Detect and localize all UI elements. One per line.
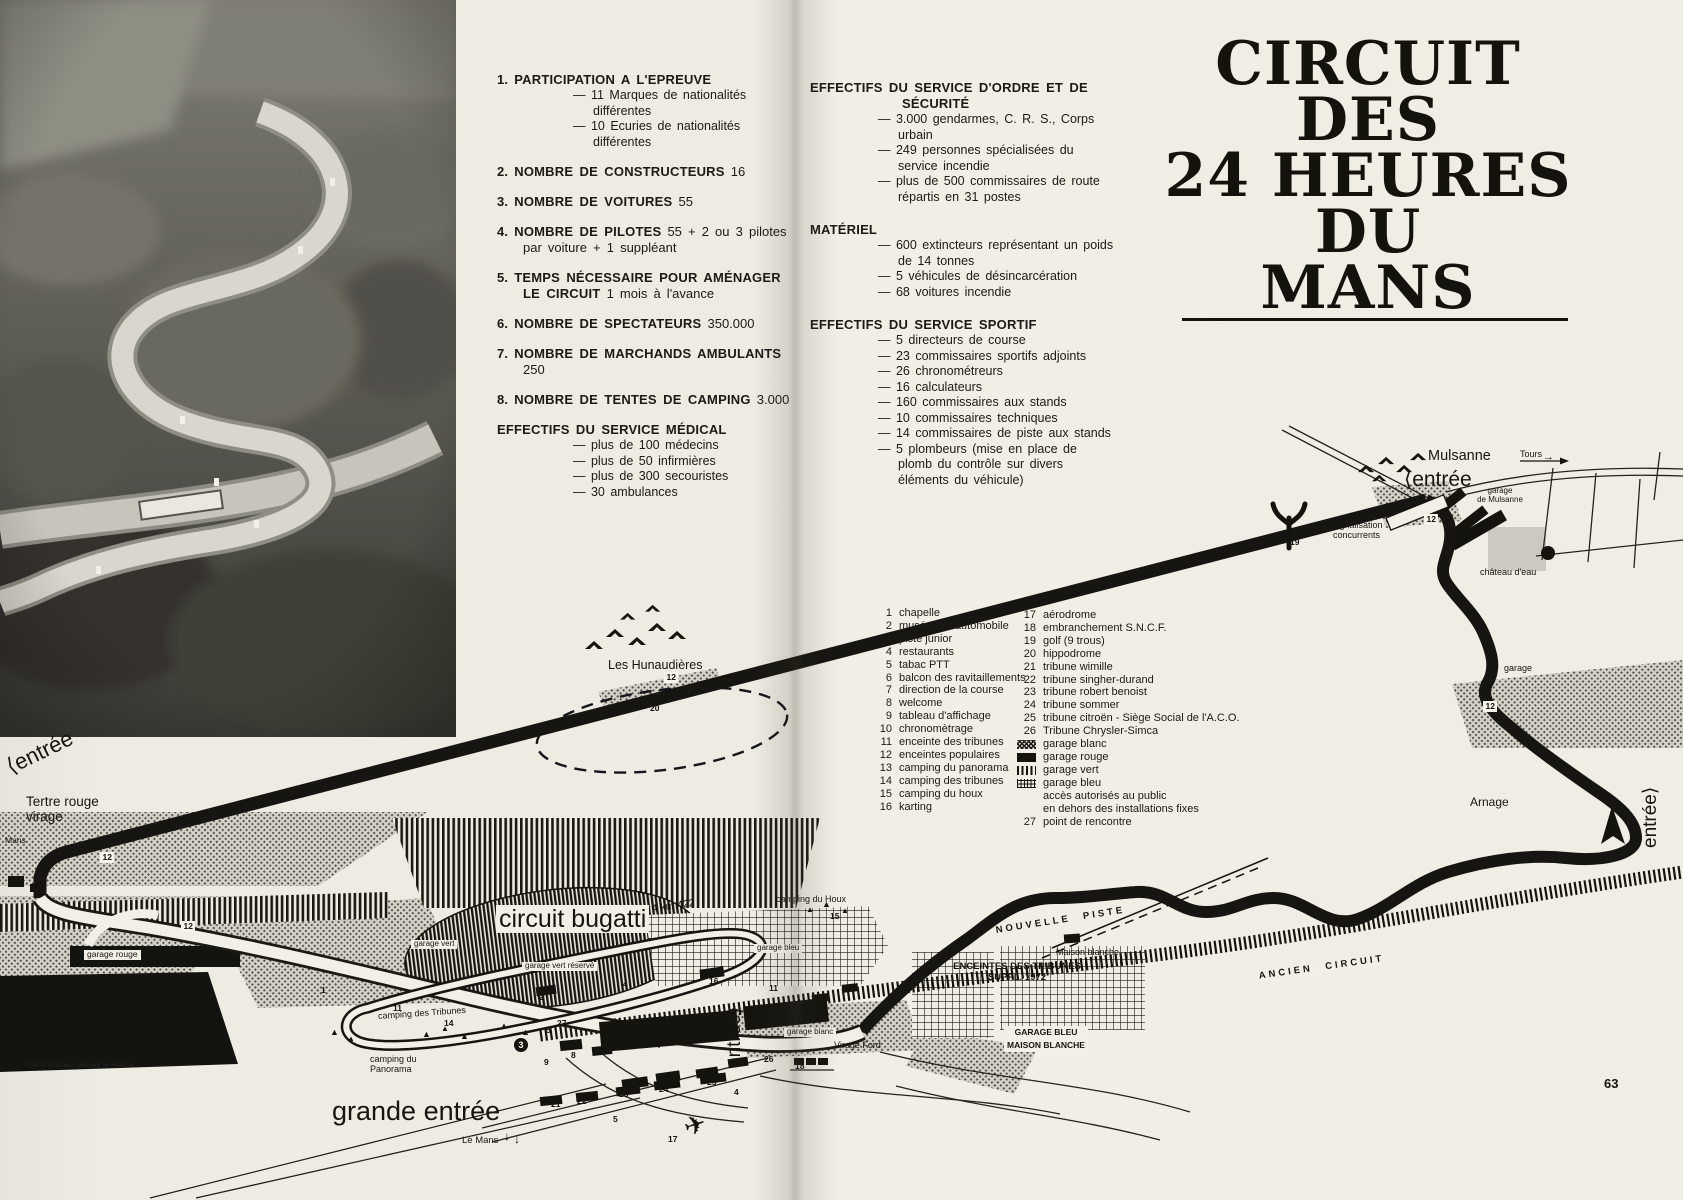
- tent-icon: ▲: [521, 1028, 530, 1037]
- tent-icon: ▲: [460, 1032, 469, 1041]
- legend-item: 14camping des tribunes: [872, 775, 1026, 788]
- legend-number: 8: [872, 697, 892, 710]
- stats-column-right: EFFECTIFS DU SERVICE D'ORDRE ET DE SÉCUR…: [810, 80, 1114, 505]
- label-garage-bleu-maison-blanche: GARAGE BLEU MAISON BLANCHE: [1004, 1026, 1088, 1052]
- stats-subline: — 5 plombeurs (mise en place de plomb du…: [810, 442, 1114, 489]
- stat-subline: — plus de 100 médecins: [497, 438, 797, 454]
- map-number: 4: [734, 1088, 739, 1097]
- label-mans: Mans: [5, 836, 26, 846]
- legend-swatch-grid: [1017, 779, 1036, 788]
- legend-item: garage vert: [1016, 764, 1240, 777]
- stat-title: NOMBRE DE TENTES DE CAMPING: [514, 392, 750, 407]
- map-number: 1: [321, 986, 326, 995]
- stat-title: NOMBRE DE CONSTRUCTEURS: [514, 164, 724, 179]
- title-line: DES: [1158, 92, 1578, 148]
- label-virage-ford: Virage Ford: [834, 1040, 881, 1050]
- map-number: 10: [791, 1017, 800, 1026]
- label-garage-rouge: garage rouge: [84, 950, 141, 960]
- stats-section-title: EFFECTIFS DU SERVICE D'ORDRE ET DE SÉCUR…: [810, 80, 1114, 112]
- stats-subline: — 16 calculateurs: [810, 380, 1114, 396]
- legend-item: 25tribune citroën - Siège Social de l'A.…: [1016, 712, 1240, 725]
- stat-item: 7.NOMBRE DE MARCHANDS AMBULANTS 250: [497, 346, 797, 378]
- map-number: 2: [539, 993, 544, 1002]
- label-camping-tribunes: camping des Tribunes: [378, 1005, 467, 1021]
- map-number: 12: [181, 921, 195, 932]
- map-number: 5: [546, 1026, 551, 1035]
- legend-item: 7direction de la course: [872, 684, 1026, 697]
- stat-item: 2.NOMBRE DE CONSTRUCTEURS 16: [497, 164, 797, 180]
- map-number: 12: [1424, 514, 1438, 525]
- stat-item: 6.NOMBRE DE SPECTATEURS 350.000: [497, 316, 797, 332]
- legend-label: Tribune Chrysler-Simca: [1043, 725, 1158, 738]
- arrow-down-icon: ↓: [504, 1130, 510, 1142]
- stat-subline: — plus de 50 infirmières: [497, 454, 797, 470]
- tent-icon: ▲: [441, 1025, 449, 1033]
- map-number: 22: [577, 1097, 586, 1106]
- legend-label: hippodrome: [1043, 648, 1101, 661]
- map-number: 12: [1483, 701, 1497, 712]
- label-entree-mulsanne: ⟨entrée: [1404, 468, 1472, 492]
- legend-label: camping des tribunes: [899, 775, 1004, 788]
- legend-number: 26: [1016, 725, 1036, 738]
- legend-label: chronomètrage: [899, 723, 973, 736]
- legend-number: 3: [872, 633, 892, 646]
- legend-label: balcon des ravitaillements: [899, 672, 1026, 685]
- legend-item: en dehors des installations fixes: [1016, 803, 1240, 816]
- stat-item: 3.NOMBRE DE VOITURES 55: [497, 194, 797, 210]
- stat-heading: 7.NOMBRE DE MARCHANDS AMBULANTS 250: [497, 346, 797, 378]
- tent-icon: ▲: [422, 1030, 431, 1039]
- legend-number: 12: [872, 749, 892, 762]
- stat-title: NOMBRE DE SPECTATEURS: [514, 316, 701, 331]
- legend-item: 24tribune sommer: [1016, 699, 1240, 712]
- stat-number: 6.: [497, 316, 508, 331]
- legend-item: 27point de rencontre: [1016, 816, 1240, 829]
- legend-item: garage rouge: [1016, 751, 1240, 764]
- map-number: 9: [544, 1058, 549, 1067]
- legend-item: 11enceinte des tribunes: [872, 736, 1026, 749]
- label-entree-centre: entrée⟩: [724, 1007, 745, 1068]
- legend-item: 17aérodrome: [1016, 609, 1240, 622]
- stat-number: 1.: [497, 72, 508, 87]
- title-line: DU: [1158, 204, 1578, 260]
- legend-number: 15: [872, 788, 892, 801]
- stat-heading: 4.NOMBRE DE PILOTES 55 + 2 ou 3 pilotes …: [497, 224, 797, 256]
- stats-subline: — 10 commissaires techniques: [810, 411, 1114, 427]
- legend-number: [1016, 803, 1036, 816]
- stats-subline: — 160 commissaires aux stands: [810, 395, 1114, 411]
- les-hunaudieres-roofs: [585, 605, 686, 649]
- legend-number: 13: [872, 762, 892, 775]
- legend-label: accès autorisés au public: [1043, 790, 1167, 803]
- stat-item: 4.NOMBRE DE PILOTES 55 + 2 ou 3 pilotes …: [497, 224, 797, 256]
- label-garage-blanc: garage blanc: [784, 1028, 836, 1037]
- legend-item: 15camping du houx: [872, 788, 1026, 801]
- legend-item: 19golf (9 trous): [1016, 635, 1240, 648]
- map-number: 7: [657, 1041, 662, 1050]
- stat-title: NOMBRE DE PILOTES: [514, 224, 661, 239]
- tent-icon: ▲: [822, 900, 831, 909]
- legend-label: garage bleu: [1043, 777, 1101, 790]
- legend-number: 5: [872, 659, 892, 672]
- stats-subline: — 68 voitures incendie: [810, 285, 1114, 301]
- legend-number: 10: [872, 723, 892, 736]
- stat-heading: 2.NOMBRE DE CONSTRUCTEURS 16: [497, 164, 797, 180]
- legend-number: 2: [872, 620, 892, 633]
- label-arnage: Arnage: [1470, 796, 1509, 809]
- stats-section-title: EFFECTIFS DU SERVICE SPORTIF: [810, 317, 1114, 333]
- legend-label: chapelle: [899, 607, 940, 620]
- tent-icon: ▲: [500, 1022, 508, 1030]
- map-number: 11: [393, 1004, 402, 1013]
- stat-heading: 8.NOMBRE DE TENTES DE CAMPING 3.000: [497, 392, 797, 408]
- stat-title: NOMBRE DE MARCHANDS AMBULANTS: [514, 346, 781, 361]
- legend-column-1: 1chapelle2musée de l'automobile3piste ju…: [872, 607, 1026, 814]
- label-garage-de-mulsanne: garage de Mulsanne: [1477, 487, 1523, 505]
- printer-credit: O P G conseil - printed in France: [26, 1062, 134, 1069]
- legend-number: 23: [1016, 686, 1036, 699]
- legend-label: musée de l'automobile: [899, 620, 1009, 633]
- legend-label: welcome: [899, 697, 942, 710]
- stats-subline: — 26 chronométreurs: [810, 364, 1114, 380]
- legend-label: karting: [899, 801, 932, 814]
- label-circuit-bugatti: circuit bugatti: [496, 905, 649, 933]
- tent-icon: ▲: [806, 906, 814, 914]
- label-signalisation: signalisation concurrents: [1333, 520, 1383, 540]
- legend-number: 7: [872, 684, 892, 697]
- stat-value: 3.000: [751, 392, 790, 407]
- label-camping-houx: camping du Houx: [776, 894, 846, 904]
- legend-swatch-dots: [1017, 740, 1036, 749]
- legend-label: camping du panorama: [899, 762, 1008, 775]
- legend-item: 23tribune robert benoist: [1016, 686, 1240, 699]
- legend-label: enceinte des tribunes: [899, 736, 1004, 749]
- stats-section: EFFECTIFS DU SERVICE SPORTIF— 5 directeu…: [810, 317, 1114, 488]
- signalisation-building: [1386, 495, 1448, 530]
- map-number: 6: [630, 1024, 635, 1033]
- label-ancien-circuit: ANCIEN CIRCUIT: [1255, 954, 1388, 983]
- label-tours: Tours: [1520, 449, 1542, 459]
- garage-bleu-zones: [645, 906, 1145, 1038]
- stat-value: 250: [523, 362, 545, 377]
- label-camping-panorama: camping du Panorama: [370, 1054, 417, 1074]
- label-tertre-rouge: Tertre rouge virage: [26, 794, 99, 824]
- stats-subline: — 5 véhicules de désincarcération: [810, 269, 1114, 285]
- label-nouvelle-piste: NOUVELLE PISTE: [995, 906, 1126, 937]
- page-title: CIRCUITDES24 HEURESDUMANS: [1158, 36, 1578, 316]
- stat-heading: EFFECTIFS DU SERVICE MÉDICAL: [497, 422, 797, 438]
- stat-heading: 5.TEMPS NÉCESSAIRE POUR AMÉNAGER LE CIRC…: [497, 270, 797, 302]
- legend-swatch-solid: [1017, 753, 1036, 762]
- legend-label: tribune wimille: [1043, 661, 1113, 674]
- stat-value: 16: [725, 164, 746, 179]
- label-entree-arnage: entrée⟩: [1640, 787, 1661, 848]
- label-enceintes-suppl: ENCEINTES DES TRIBUNES SUPPL. 1972: [953, 962, 1081, 983]
- label-garage-arnage: garage: [1504, 663, 1532, 673]
- stat-title: EFFECTIFS DU SERVICE MÉDICAL: [497, 422, 727, 437]
- legend-item: garage bleu: [1016, 777, 1240, 790]
- stat-number: 4.: [497, 224, 508, 239]
- legend-item: 5tabac PTT: [872, 659, 1026, 672]
- arrow-right-icon: →: [1543, 452, 1554, 463]
- legend-item: 4restaurants: [872, 646, 1026, 659]
- legend-label: direction de la course: [899, 684, 1004, 697]
- legend-label: point de rencontre: [1043, 816, 1132, 829]
- legend-label: tabac PTT: [899, 659, 950, 672]
- map-number: 14: [444, 1019, 453, 1028]
- legend-label: garage blanc: [1043, 738, 1107, 751]
- stats-column-left: 1.PARTICIPATION A L'EPREUVE— 11 Marques …: [497, 72, 797, 514]
- stat-title: PARTICIPATION A L'EPREUVE: [514, 72, 711, 87]
- mulsanne-roofs: [1358, 453, 1426, 481]
- legend-label: enceintes populaires: [899, 749, 1000, 762]
- stat-subline: — 11 Marques de nationalités différentes: [497, 88, 797, 119]
- title-line: CIRCUIT: [1158, 36, 1578, 92]
- stat-item: 1.PARTICIPATION A L'EPREUVE— 11 Marques …: [497, 72, 797, 150]
- hippodrome-outline: [532, 675, 792, 785]
- legend-label: tribune singher-durand: [1043, 674, 1154, 687]
- legend-number: 19: [1016, 635, 1036, 648]
- legend-item: 20hippodrome: [1016, 648, 1240, 661]
- legend-swatch-vlines: [1017, 766, 1036, 775]
- legend-item: accès autorisés au public: [1016, 790, 1240, 803]
- legend-label: tableau d'affichage: [899, 710, 991, 723]
- garage-vert-zones: [0, 818, 820, 1024]
- legend-number: 20: [1016, 648, 1036, 661]
- map-number: 15: [830, 912, 839, 921]
- plane-icon: ✈: [681, 1109, 710, 1140]
- legend-column-2: 17aérodrome18embranchement S.N.C.F.19gol…: [1016, 609, 1240, 828]
- legend-label: garage rouge: [1043, 751, 1108, 764]
- legend-number: 24: [1016, 699, 1036, 712]
- legend-label: golf (9 trous): [1043, 635, 1105, 648]
- legend-item: 9tableau d'affichage: [872, 710, 1026, 723]
- legend-item: 22tribune singher-durand: [1016, 674, 1240, 687]
- label-garage-vert: garage vert: [411, 940, 457, 949]
- stat-value: 55: [672, 194, 693, 209]
- label-bugatti-length: 4 km 422: [651, 898, 695, 916]
- stats-subline: — 3.000 gendarmes, C. R. S., Corps urbai…: [810, 112, 1114, 143]
- stat-heading: 6.NOMBRE DE SPECTATEURS 350.000: [497, 316, 797, 332]
- stat-heading: 3.NOMBRE DE VOITURES 55: [497, 194, 797, 210]
- page-number: 63: [1604, 1076, 1618, 1091]
- stats-section: MATÉRIEL— 600 extincteurs représentant u…: [810, 222, 1114, 300]
- map-number: 3: [514, 1038, 528, 1052]
- legend-label: restaurants: [899, 646, 954, 659]
- legend-item: 12enceintes populaires: [872, 749, 1026, 762]
- legend-number: 25: [1016, 712, 1036, 725]
- map-number: 19: [1290, 538, 1299, 547]
- stat-heading: 1.PARTICIPATION A L'EPREUVE: [497, 72, 797, 88]
- chateau-grounds: [1488, 527, 1546, 571]
- map-number: 27: [557, 1019, 566, 1028]
- stat-number: 8.: [497, 392, 508, 407]
- stats-subline: — 249 personnes spécialisées du service …: [810, 143, 1114, 174]
- stat-number: 3.: [497, 194, 508, 209]
- stat-item: 5.TEMPS NÉCESSAIRE POUR AMÉNAGER LE CIRC…: [497, 270, 797, 302]
- legend-label: tribune sommer: [1043, 699, 1119, 712]
- track-start-finish-road: [40, 898, 862, 1044]
- legend-label: embranchement S.N.C.F.: [1043, 622, 1167, 635]
- stat-subline: — 30 ambulances: [497, 485, 797, 501]
- legend-number: 9: [872, 710, 892, 723]
- legend-label: tribune robert benoist: [1043, 686, 1147, 699]
- stat-item: EFFECTIFS DU SERVICE MÉDICAL— plus de 10…: [497, 422, 797, 500]
- stats-section-title: MATÉRIEL: [810, 222, 1114, 238]
- legend-label: camping du houx: [899, 788, 983, 801]
- tent-icon: ▲: [841, 907, 849, 915]
- stats-subline: — 14 commissaires de piste aux stands: [810, 426, 1114, 442]
- legend-number: [1016, 790, 1036, 803]
- legend-number: 16: [872, 801, 892, 814]
- map-number: 18: [795, 1062, 804, 1071]
- map-number: 8: [571, 1051, 576, 1060]
- legend-item: 16karting: [872, 801, 1026, 814]
- title-line: 24 HEURES: [1158, 148, 1578, 204]
- label-garage-bleu: garage bleu: [754, 944, 802, 953]
- map-number: 12: [664, 672, 678, 683]
- label-mulsanne: Mulsanne: [1428, 448, 1491, 464]
- legend-number: 4: [872, 646, 892, 659]
- tent-icon: ▲: [330, 1028, 339, 1037]
- label-grande-entree: grande entrée: [332, 1096, 500, 1126]
- legend-label: garage vert: [1043, 764, 1099, 777]
- ancien-circuit-band: [540, 872, 1683, 1035]
- legend-item: 3piste junior: [872, 633, 1026, 646]
- legend-item: 21tribune wimille: [1016, 661, 1240, 674]
- stat-value: 350.000: [701, 316, 754, 331]
- track-bugatti-ring: [346, 933, 762, 1045]
- stat-subline: — 10 Ecuries de nationalités différentes: [497, 119, 797, 150]
- legend-item: 13camping du panorama: [872, 762, 1026, 775]
- stats-section: EFFECTIFS DU SERVICE D'ORDRE ET DE SÉCUR…: [810, 80, 1114, 205]
- stat-item: 8.NOMBRE DE TENTES DE CAMPING 3.000: [497, 392, 797, 408]
- golf-icon: [1273, 504, 1305, 548]
- legend-number: 21: [1016, 661, 1036, 674]
- legend-label: piste junior: [899, 633, 952, 646]
- title-rule: [1182, 318, 1568, 321]
- map-number: 23: [619, 1090, 628, 1099]
- legend-number: 11: [872, 736, 892, 749]
- map-number: 16: [709, 977, 718, 986]
- label-maison-blanche: Maison blanche: [1056, 947, 1119, 957]
- legend-item: 26Tribune Chrysler-Simca: [1016, 725, 1240, 738]
- stat-subline: — plus de 300 secouristes: [497, 469, 797, 485]
- legend-number: 1: [872, 607, 892, 620]
- stat-title: NOMBRE DE VOITURES: [514, 194, 672, 209]
- label-les-hunaudieres: Les Hunaudières: [608, 658, 703, 672]
- stat-number: 5.: [497, 270, 508, 285]
- label-le-mans: Le Mans: [462, 1136, 498, 1147]
- magazine-spread: 1.PARTICIPATION A L'EPREUVE— 11 Marques …: [0, 0, 1683, 1200]
- legend-number: 17: [1016, 609, 1036, 622]
- map-number: 11: [769, 984, 778, 993]
- legend-label: aérodrome: [1043, 609, 1096, 622]
- legend-number: 14: [872, 775, 892, 788]
- stat-number: 7.: [497, 346, 508, 361]
- map-number: 25: [707, 1078, 716, 1087]
- map-number: 12: [100, 852, 114, 863]
- stats-subline: — 5 directeurs de course: [810, 333, 1114, 349]
- map-number: 5: [613, 1115, 618, 1124]
- label-chateau-eau: château d'eau: [1480, 567, 1536, 577]
- map-number: 21: [551, 1100, 560, 1109]
- legend-item: garage blanc: [1016, 738, 1240, 751]
- legend-item: 2musée de l'automobile: [872, 620, 1026, 633]
- stats-subline: — plus de 500 commissaires de route répa…: [810, 174, 1114, 205]
- stat-number: 2.: [497, 164, 508, 179]
- stat-value: 1 mois à l'avance: [600, 286, 714, 301]
- garage-rouge-zone: [0, 946, 240, 1072]
- legend-item: 8welcome: [872, 697, 1026, 710]
- legend-number: 6: [872, 672, 892, 685]
- legend-number: 18: [1016, 622, 1036, 635]
- map-number: 20: [650, 704, 659, 713]
- map-number: 24: [659, 1085, 668, 1094]
- legend-label: tribune citroën - Siège Social de l'A.C.…: [1043, 712, 1240, 725]
- tent-icon: ▲: [347, 1035, 355, 1043]
- legend-number: 27: [1016, 816, 1036, 829]
- legend-item: 1chapelle: [872, 607, 1026, 620]
- map-number: 26: [764, 1055, 773, 1064]
- legend-item: 10chronomètrage: [872, 723, 1026, 736]
- legend-item: 6balcon des ravitaillements: [872, 672, 1026, 685]
- stats-subline: — 23 commissaires sportifs adjoints: [810, 349, 1114, 365]
- legend-label: en dehors des installations fixes: [1043, 803, 1199, 816]
- map-number: 4: [623, 980, 628, 989]
- aerial-photo: [0, 0, 456, 737]
- arrow-down-icon: ↓: [514, 1133, 520, 1145]
- title-line: MANS: [1158, 260, 1578, 316]
- map-number: 17: [668, 1135, 677, 1144]
- stats-subline: — 600 extincteurs représentant un poids …: [810, 238, 1114, 269]
- legend-item: 18embranchement S.N.C.F.: [1016, 622, 1240, 635]
- label-garage-vert-reserve: garage vert réservé: [522, 962, 597, 971]
- legend-number: 22: [1016, 674, 1036, 687]
